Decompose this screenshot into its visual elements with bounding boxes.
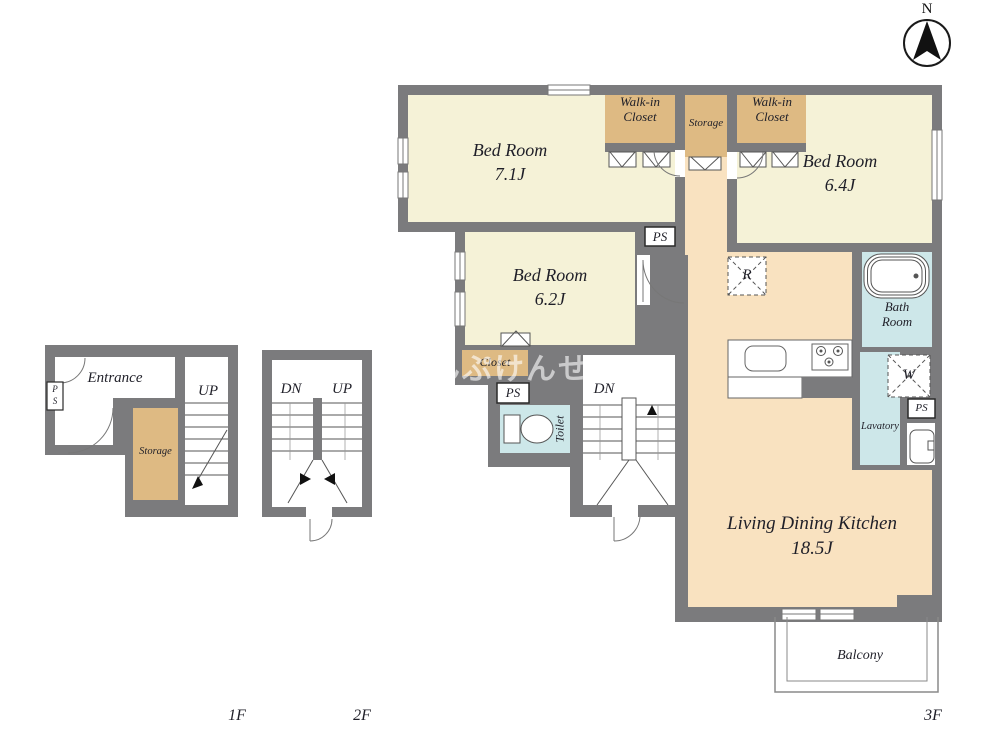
toilet-label: Toilet [553,416,568,443]
storage-3f-label: Storage [684,116,728,130]
bedroom1-name-label: Bed Room [420,139,600,162]
bedroom3-size-label: 6.2J [462,288,638,311]
bathroom-line1: Bath [862,300,932,315]
floor-2f-plan [262,350,372,541]
bathroom-label: Bath Room [862,300,932,330]
lavatory-label: Lavatory [854,420,906,434]
bedroom3-name-label: Bed Room [462,264,638,287]
walkin-closet2-line2: Closet [734,110,810,125]
ps-marker-2: PS [908,401,935,415]
ps-marker-1: PS [645,229,675,246]
bathroom-line2: Room [862,315,932,330]
stove-icon [812,344,848,370]
refrigerator-marker: R [728,266,766,286]
storage-1f-label: Storage [132,445,179,459]
walkin-closet2-line1: Walk-in [734,95,810,110]
bedroom1-size-label: 7.1J [420,163,600,186]
door-2f-icon [306,507,332,541]
down-label-2f: DN [272,380,310,400]
kitchen-sink-icon [745,346,786,371]
walkin-closet1-line1: Walk-in [602,95,678,110]
washer-marker: W [888,366,930,386]
entrance-label: Entrance [58,369,172,389]
p-marker-1f: P [47,385,63,394]
floor-label-2f: 2F [341,706,383,727]
bedroom2-name-label: Bed Room [748,150,932,173]
balcony-label: Balcony [800,647,920,665]
north-compass-icon [904,20,950,66]
up-label-2f: UP [323,380,361,400]
ldk-size-label: 18.5J [692,537,932,562]
walkin-closet2-label: Walk-in Closet [734,95,810,125]
watermark-text: さんぷけんせつ [398,344,622,388]
bedroom2-size-label: 6.4J [748,174,932,197]
s-marker-1f: S [47,397,63,406]
ldk-name-label: Living Dining Kitchen [692,512,932,537]
lavatory-sink-icon [910,430,934,463]
floor-label-1f: 1F [216,706,258,727]
up-label-1f: UP [189,382,227,402]
kitchen-counter [728,340,852,398]
walkin-closet1-line2: Closet [602,110,678,125]
walkin-closet1-label: Walk-in Closet [602,95,678,125]
north-label: N [912,1,942,18]
bathtub-icon [864,254,929,298]
toilet-icon [504,415,553,443]
floorplan-canvas: Bed Room 7.1J Walk-in Closet Storage Wal… [0,0,1000,750]
floor-label-3f: 3F [912,706,954,727]
